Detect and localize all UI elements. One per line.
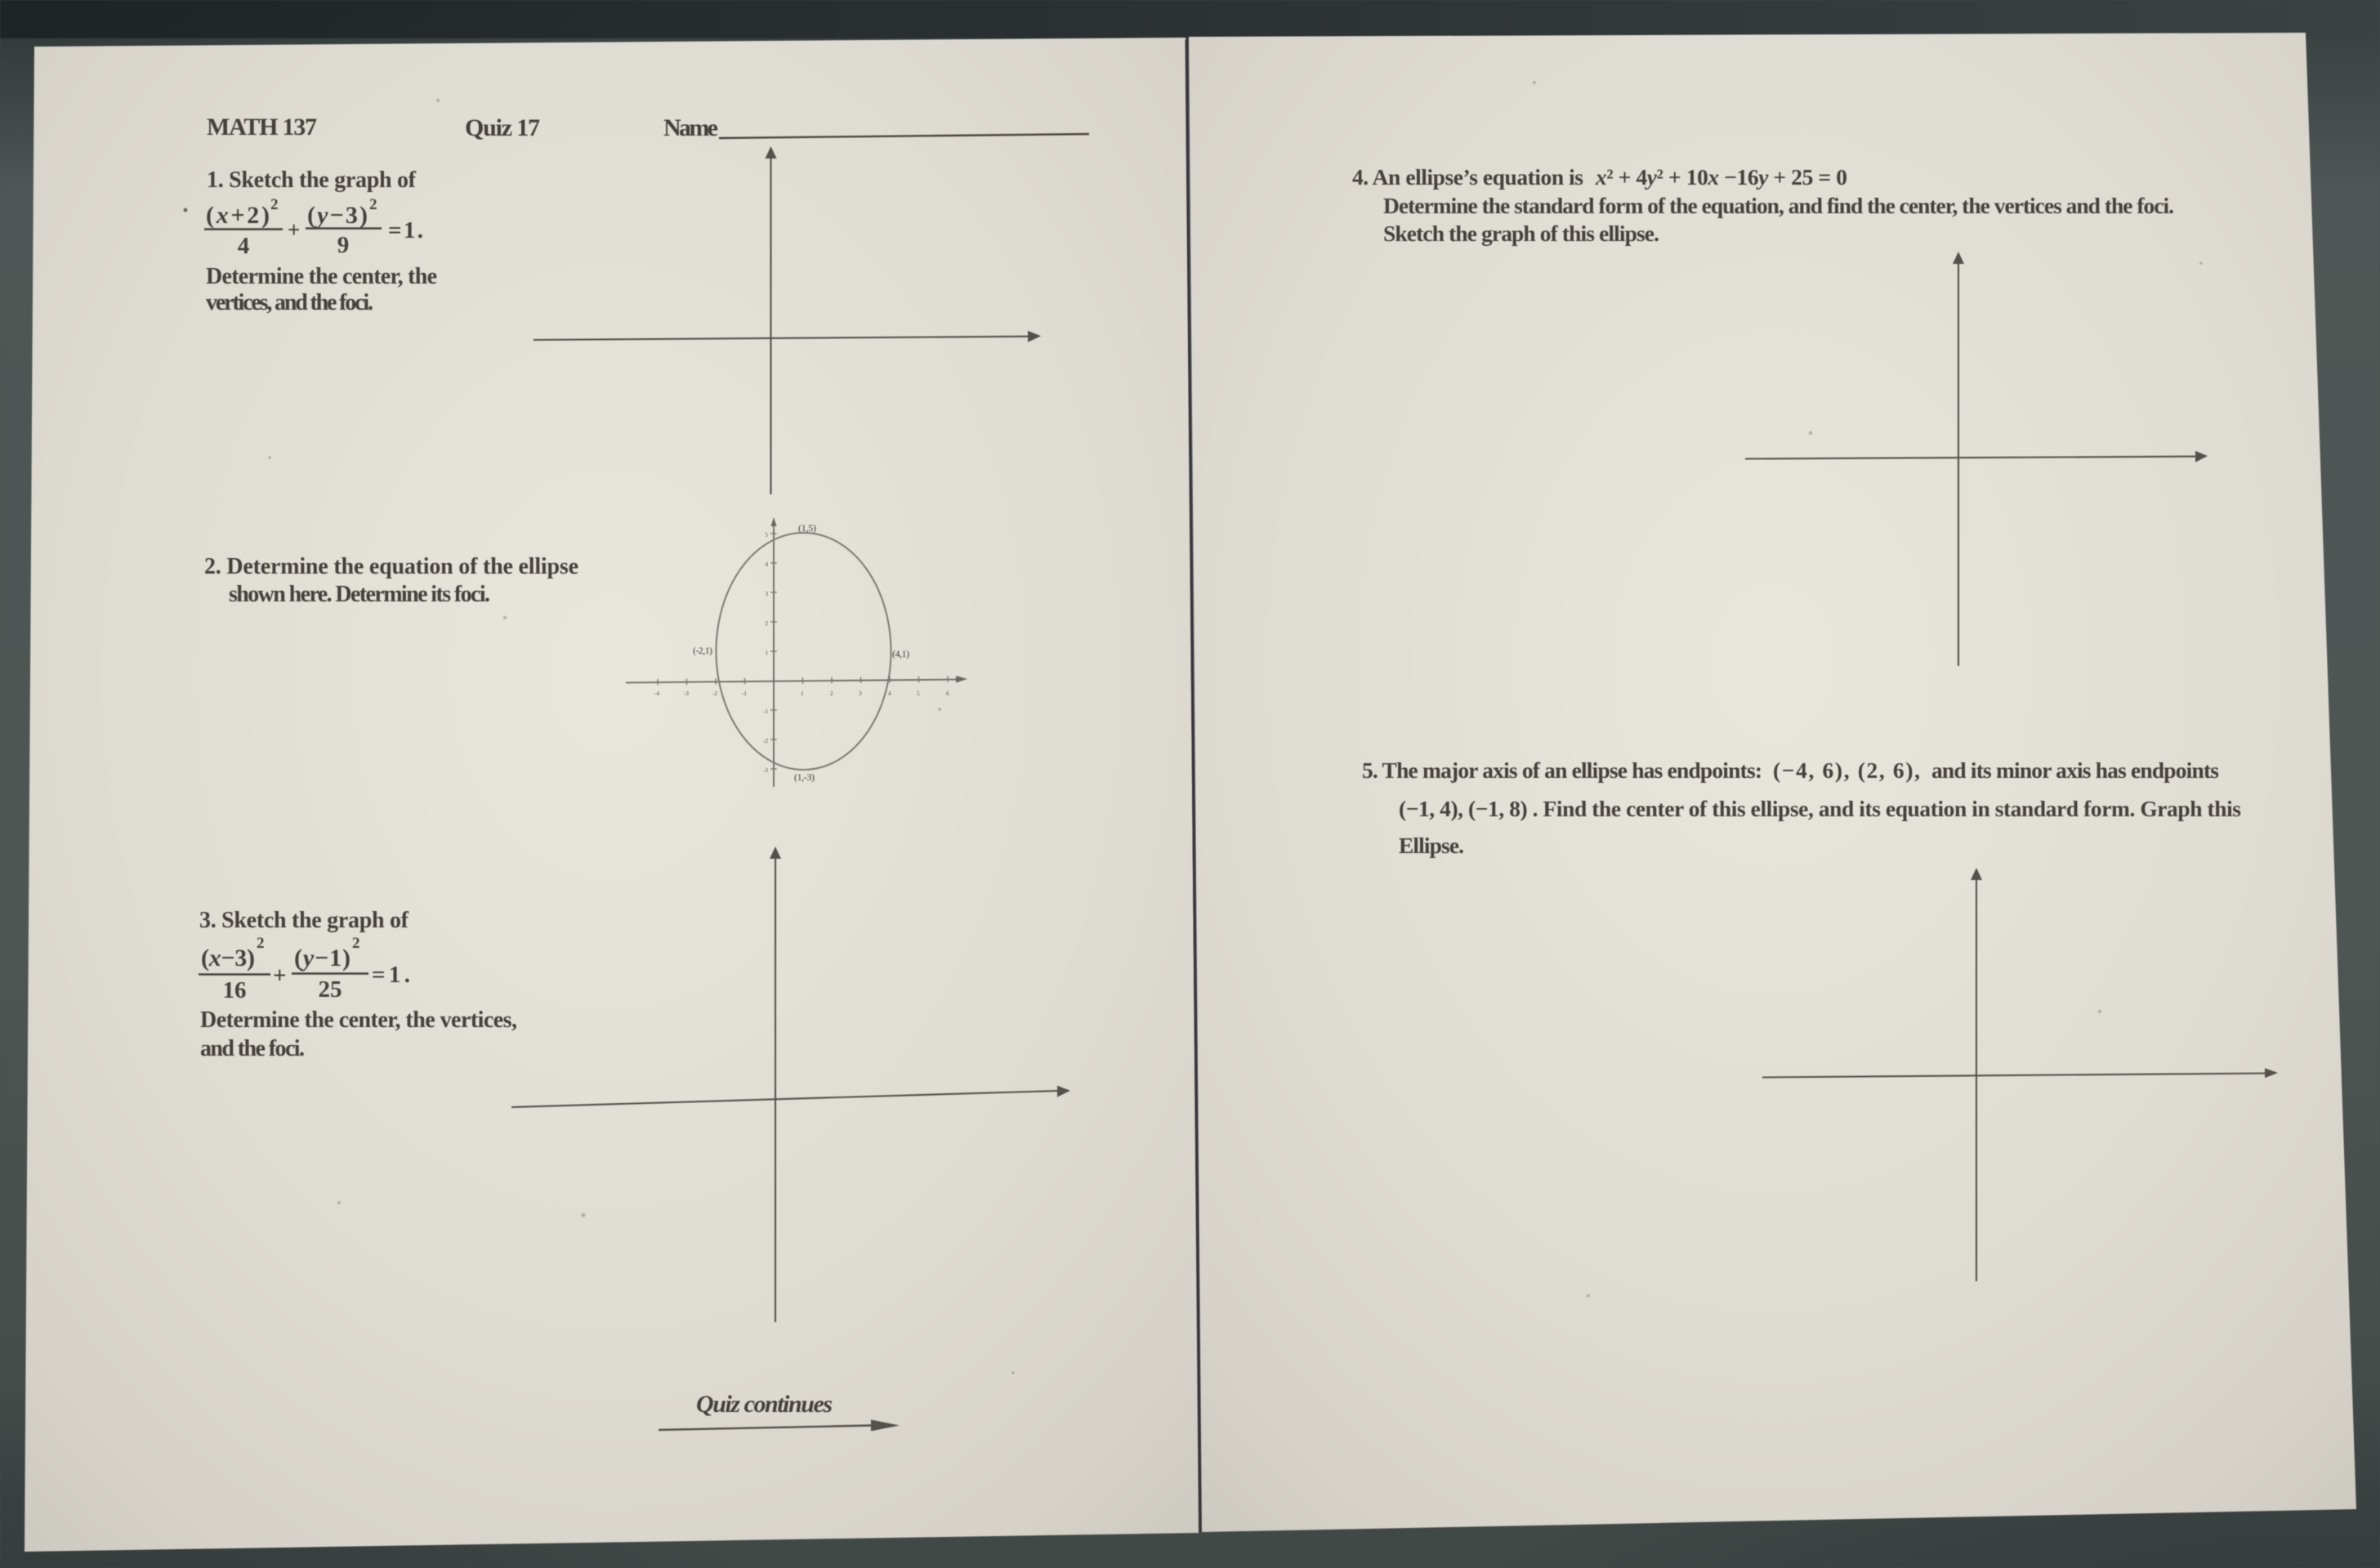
- svg-text:2: 2: [352, 935, 360, 952]
- svg-text:6: 6: [946, 690, 949, 697]
- svg-text:-1: -1: [742, 690, 747, 697]
- svg-text:5. The major axis of an ellips: 5. The major axis of an ellipse has endp…: [1362, 757, 1762, 783]
- svg-text:1. Sketch the graph of: 1. Sketch the graph of: [207, 168, 417, 193]
- svg-text:(x−3): (x−3): [201, 945, 255, 972]
- svg-text:and the foci.: and the foci.: [200, 1036, 305, 1061]
- svg-text:shown here. Determine its foci: shown here. Determine its foci.: [229, 582, 490, 607]
- svg-text:-3: -3: [763, 767, 768, 774]
- svg-text:2. Determine the equation of t: 2. Determine the equation of the ellipse: [204, 554, 578, 579]
- svg-text:Quiz continues: Quiz continues: [696, 1391, 833, 1418]
- svg-text:3: 3: [859, 690, 862, 697]
- svg-text:and its minor axis has endpoin: and its minor axis has endpoints: [1931, 757, 2219, 783]
- svg-text:-3: -3: [684, 690, 689, 697]
- svg-text:-2: -2: [763, 738, 768, 744]
- svg-text:Ellipse.: Ellipse.: [1399, 833, 1464, 858]
- svg-text:=1.: =1.: [388, 217, 423, 243]
- svg-text:-1: -1: [763, 708, 768, 715]
- svg-text:+: +: [273, 963, 287, 989]
- svg-text:16: 16: [223, 977, 247, 1003]
- svg-text:=1.: =1.: [372, 962, 410, 988]
- svg-text:2: 2: [257, 935, 265, 952]
- svg-text:5: 5: [766, 532, 769, 538]
- svg-text:2: 2: [369, 196, 377, 213]
- svg-text:(4,1): (4,1): [892, 648, 909, 659]
- svg-text:(1,-3): (1,-3): [794, 771, 815, 783]
- svg-text:+: +: [288, 217, 300, 242]
- svg-text:Sketch the graph of this ellip: Sketch the graph of this ellipse.: [1383, 221, 1659, 246]
- svg-text:25: 25: [319, 976, 342, 1003]
- svg-text:2: 2: [270, 196, 279, 213]
- svg-text:Determine the center, the: Determine the center, the: [206, 264, 437, 289]
- svg-text:(y−1): (y−1): [294, 945, 351, 972]
- svg-text:4: 4: [766, 561, 769, 568]
- svg-text:(−1, 4), (−1, 8) . Find the ce: (−1, 4), (−1, 8) . Find the center of th…: [1399, 796, 2241, 821]
- svg-text:Name: Name: [663, 114, 718, 141]
- svg-text:3. Sketch the graph of: 3. Sketch the graph of: [199, 908, 409, 933]
- svg-text:4: 4: [888, 690, 891, 697]
- svg-text:(-2,1): (-2,1): [693, 645, 712, 656]
- svg-text:1: 1: [766, 650, 769, 656]
- svg-text:MATH 137: MATH 137: [207, 114, 317, 141]
- svg-text:2: 2: [830, 690, 833, 697]
- svg-text:-4: -4: [654, 690, 659, 697]
- svg-text:4. An ellipse’s equation is: 4. An ellipse’s equation is: [1352, 164, 1583, 190]
- svg-text:1: 1: [801, 690, 804, 697]
- svg-text:(1,5): (1,5): [798, 522, 816, 534]
- svg-text:Determine the center, the vert: Determine the center, the vertices,: [200, 1007, 517, 1033]
- svg-text:x² + 4y² + 10x −16y + 25 = 0: x² + 4y² + 10x −16y + 25 = 0: [1595, 164, 1847, 190]
- svg-text:9: 9: [337, 232, 350, 258]
- svg-text:4: 4: [238, 233, 250, 259]
- svg-text:5: 5: [917, 690, 920, 697]
- svg-text:Determine the standard form of: Determine the standard form of the equat…: [1383, 193, 2174, 218]
- svg-text:Quiz 17: Quiz 17: [465, 114, 540, 141]
- svg-text:2: 2: [766, 620, 769, 627]
- svg-text:3: 3: [766, 591, 769, 597]
- svg-text:vertices, and the foci.: vertices, and the foci.: [206, 290, 373, 315]
- svg-text:-2: -2: [712, 690, 717, 697]
